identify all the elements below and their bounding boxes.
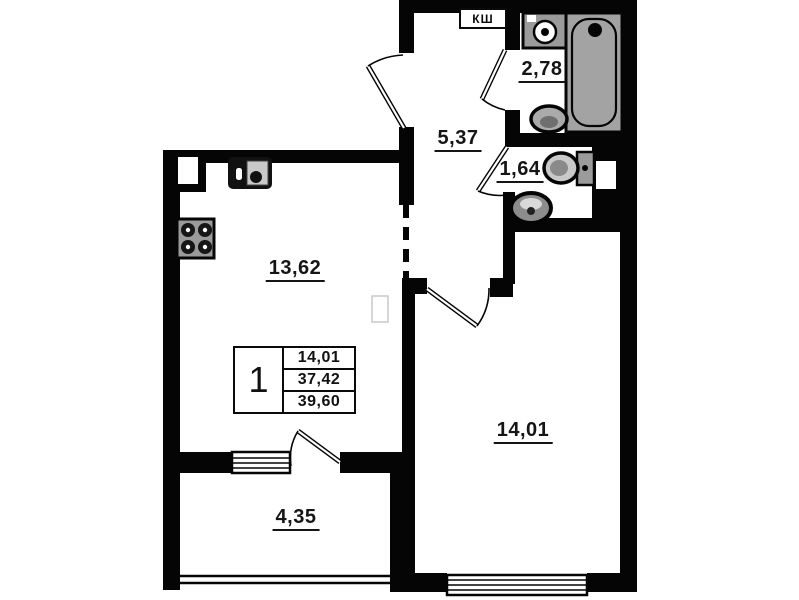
balcony-door: [290, 431, 340, 466]
washing-machine: [523, 13, 566, 48]
wall-segment: [399, 127, 414, 205]
radiator: [372, 296, 388, 322]
wc-area-label: 1,64: [497, 159, 544, 183]
total-area-value: 39,60: [284, 390, 354, 412]
living-area-value: 14,01: [284, 348, 354, 368]
area-values: 14,01 37,42 39,60: [284, 348, 354, 412]
bathroom-door: [482, 50, 505, 110]
living-room-window: [447, 575, 587, 595]
wall-segment: [402, 285, 415, 475]
corner-duct-niche: [178, 157, 198, 184]
rooms-count: 1: [235, 348, 284, 412]
wall-segment: [399, 0, 414, 53]
bathroom-area-label: 2,78: [519, 59, 566, 83]
wall-segment: [340, 452, 402, 473]
wall-segment: [163, 150, 180, 590]
area-without-balcony-value: 37,42: [284, 368, 354, 390]
balcony-area-label: 4,35: [273, 507, 320, 531]
living-room-area-label: 14,01: [494, 420, 553, 444]
wall-segment: [587, 573, 637, 592]
wall-segment: [490, 278, 513, 297]
kitchen-sink: [228, 157, 272, 189]
wall-segment: [505, 13, 520, 50]
wall-segment: [505, 110, 520, 137]
floor-plan-drawing: [0, 0, 799, 600]
wall-segment: [402, 573, 447, 592]
hallway-area-label: 5,37: [435, 128, 482, 152]
bathtub: [566, 13, 622, 132]
stove: [177, 219, 214, 258]
floor-plan: КШ 13,62 5,37 2,78 1,64 14,01 4,35 1 14,…: [0, 0, 799, 600]
apartment-info-table: 1 14,01 37,42 39,60: [233, 346, 356, 414]
vent-shaft-niche: [596, 161, 616, 189]
bathroom-sink: [531, 106, 567, 132]
kitchen-area-label: 13,62: [266, 258, 325, 282]
electrical-box-label: КШ: [459, 8, 507, 29]
wc-sink: [511, 193, 551, 223]
living-room-door: [427, 288, 489, 326]
balcony-glazing: [180, 576, 402, 583]
wall-segment: [163, 452, 232, 473]
toilet: [544, 152, 594, 185]
kitchen-balcony-window: [232, 452, 290, 473]
entrance-door: [368, 55, 404, 128]
wall-segment: [399, 0, 637, 13]
